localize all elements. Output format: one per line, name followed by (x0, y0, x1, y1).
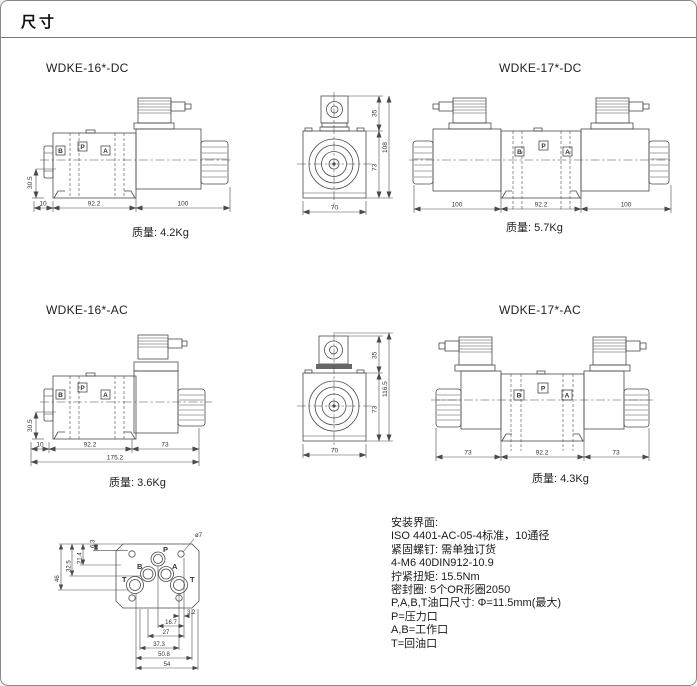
port-label-p: P (163, 545, 168, 554)
valve-title-dc16: WDKE-16*-DC (46, 61, 129, 75)
installation-notes: 安装界面: ISO 4401-AC-05-4标准，10通径 紧固螺钉: 需单独订… (391, 517, 561, 651)
dim-v-total: 46 (55, 575, 61, 582)
dimension-lines (32, 169, 230, 212)
note-line: 安装界面: (391, 517, 561, 530)
note-line: A,B=工作口 (391, 624, 561, 637)
dim-b3: 27 (163, 630, 170, 636)
port-label-b: B (58, 148, 63, 155)
valve-title-ac17: WDKE-17*-AC (499, 303, 581, 317)
dim-seg1: 10 (36, 442, 44, 449)
dimension-lines (303, 96, 671, 215)
dim-seg3: 73 (161, 442, 169, 449)
dim-width: 70 (331, 448, 339, 455)
labels: B P A 30.5 10 92.2 73 175.2 (27, 385, 169, 462)
dim-total: 116.5 (382, 381, 389, 397)
note-line: 拧紧扭矩: 15.5Nm (391, 571, 561, 584)
note-line: P,A,B,T油口尺寸: Φ=11.5mm(最大) (391, 597, 561, 610)
port-label-p: P (80, 385, 85, 392)
dim-seg1: 100 (452, 202, 463, 209)
valve-body-group (40, 335, 212, 439)
dim-total: 175.2 (107, 455, 124, 462)
dim-b1: 3.2 (187, 610, 196, 616)
dim-b2: 16.7 (165, 620, 177, 626)
valve-body-group (40, 98, 232, 198)
dim-total: 108 (382, 142, 389, 153)
valve-title-dc17: WDKE-17*-DC (499, 61, 582, 75)
note-line: P=压力口 (391, 611, 561, 624)
dim-seg1: 10 (39, 201, 47, 208)
note-line: 4-M6 40DIN912-10.9 (391, 557, 561, 570)
plate-group (116, 539, 199, 608)
dim-seg3: 73 (612, 450, 620, 457)
port-label-b: B (517, 149, 522, 156)
end-view-group (297, 332, 372, 449)
port-label-p: P (541, 386, 546, 393)
note-line: 密封圈: 5个OR形圈2050 (391, 584, 561, 597)
port-label-p: P (541, 143, 546, 150)
port-label-p: P (80, 144, 85, 151)
port-label-a: A (172, 562, 178, 571)
end-view-group (297, 92, 372, 208)
dim-b6: 54 (164, 662, 171, 668)
dim-v-inner: 21.4 (78, 552, 84, 564)
dim-height: 30.5 (27, 176, 34, 189)
dim-seg2: 92.2 (536, 450, 549, 457)
port-label-t1: T (122, 575, 127, 584)
port-label-a: A (103, 148, 108, 155)
note-line: 紧固螺钉: 需单独订货 (391, 544, 561, 557)
page-title: 尺寸 (21, 11, 57, 32)
dim-body: 73 (372, 163, 379, 171)
hole-diameter-label: ø7 (195, 533, 203, 539)
drawing-mounting-interface: P B A T T ø7 46 32.5 21.4 6.3 3.2 16.7 2… (31, 506, 271, 686)
side-view-group (409, 98, 673, 209)
labels: 35 73 108 70 B P A 100 92.2 100 (331, 109, 632, 211)
drawing-wdke-17-ac: 35 73 116.5 70 B P A 73 92.2 73 (291, 316, 691, 491)
dim-seg1: 73 (464, 450, 472, 457)
dim-b4: 37.3 (153, 642, 165, 648)
dim-conn: 35 (372, 109, 379, 117)
note-line: T=回油口 (391, 638, 561, 651)
dim-seg2: 92.2 (84, 442, 97, 449)
valve-title-ac16: WDKE-16*-AC (46, 303, 128, 317)
note-line: ISO 4401-AC-05-4标准，10通径 (391, 530, 561, 543)
dim-body: 73 (372, 405, 379, 413)
dim-v-mid: 32.5 (67, 560, 73, 572)
port-label-b: B (58, 392, 63, 399)
drawing-wdke-17-dc: 35 73 108 70 B P A 100 92.2 100 (291, 81, 691, 246)
dim-seg2: 92.2 (535, 202, 548, 209)
dim-seg3: 100 (178, 201, 189, 208)
dim-v-top: 6.3 (91, 539, 97, 548)
dim-seg3: 100 (621, 202, 632, 209)
port-label-a: A (565, 149, 570, 156)
title-divider (1, 37, 696, 38)
dim-width: 70 (331, 205, 339, 212)
port-label-t2: T (190, 575, 195, 584)
dim-b5: 50.8 (158, 652, 170, 658)
dim-seg2: 92.2 (88, 201, 101, 208)
port-label-a: A (103, 392, 108, 399)
drawing-wdke-16-ac: B P A 30.5 10 92.2 73 175.2 (26, 316, 276, 491)
dim-height: 30.5 (27, 419, 34, 432)
catalog-page: 尺寸 WDKE-16*-DC WDKE-17*-DC WDKE-16*-AC W… (0, 0, 697, 686)
port-label-b: B (517, 393, 522, 400)
side-view-group (431, 337, 653, 451)
port-label-b: B (137, 562, 143, 571)
dim-conn: 35 (372, 351, 379, 359)
port-label-a: A (565, 393, 570, 400)
drawing-wdke-16-dc: B P A 30.5 10 92.2 100 (26, 81, 256, 246)
